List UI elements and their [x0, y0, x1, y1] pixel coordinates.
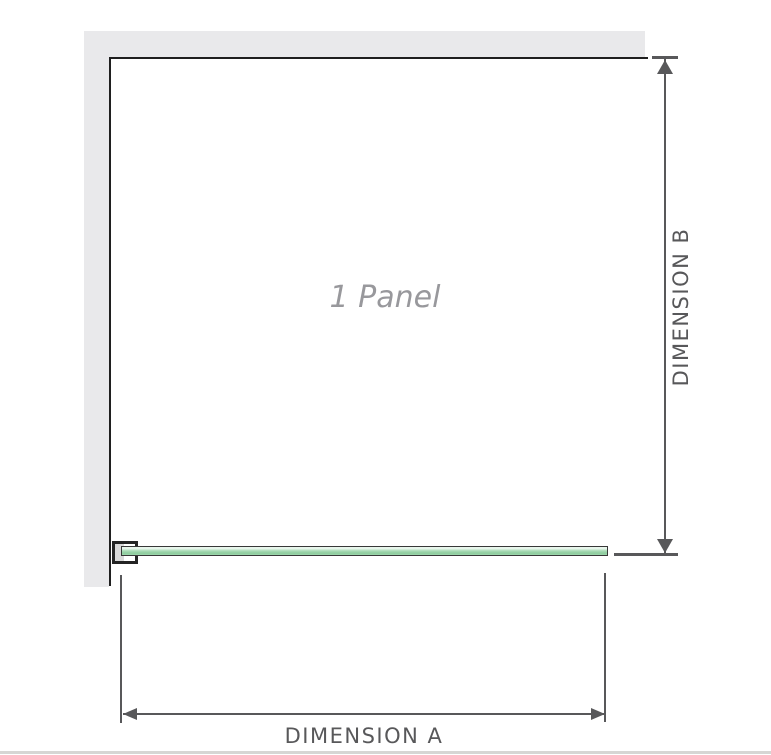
arrow-down-icon — [657, 539, 673, 553]
dimension-b-line — [664, 59, 666, 553]
dimension-b-label: DIMENSION B — [668, 197, 694, 417]
diagram-canvas: 1 Panel DIMENSION B DIMENSION A — [0, 0, 771, 755]
glass-panel — [121, 546, 608, 556]
arrow-left-icon — [123, 708, 137, 720]
arrow-right-icon — [591, 708, 605, 720]
wall-top — [84, 31, 645, 58]
panel-outline-left — [109, 57, 111, 586]
dimension-a-right-extension — [604, 573, 606, 722]
dimension-a-left-extension — [120, 575, 122, 723]
arrow-up-icon — [657, 60, 673, 74]
panel-count-label: 1 Panel — [185, 280, 585, 315]
dimension-a-label: DIMENSION A — [214, 724, 514, 748]
image-bottom-edge — [0, 751, 771, 754]
panel-outline-top — [109, 57, 648, 59]
wall-left — [84, 31, 109, 587]
dimension-a-line — [123, 713, 605, 715]
dimension-b-bottom-tick — [614, 553, 678, 556]
